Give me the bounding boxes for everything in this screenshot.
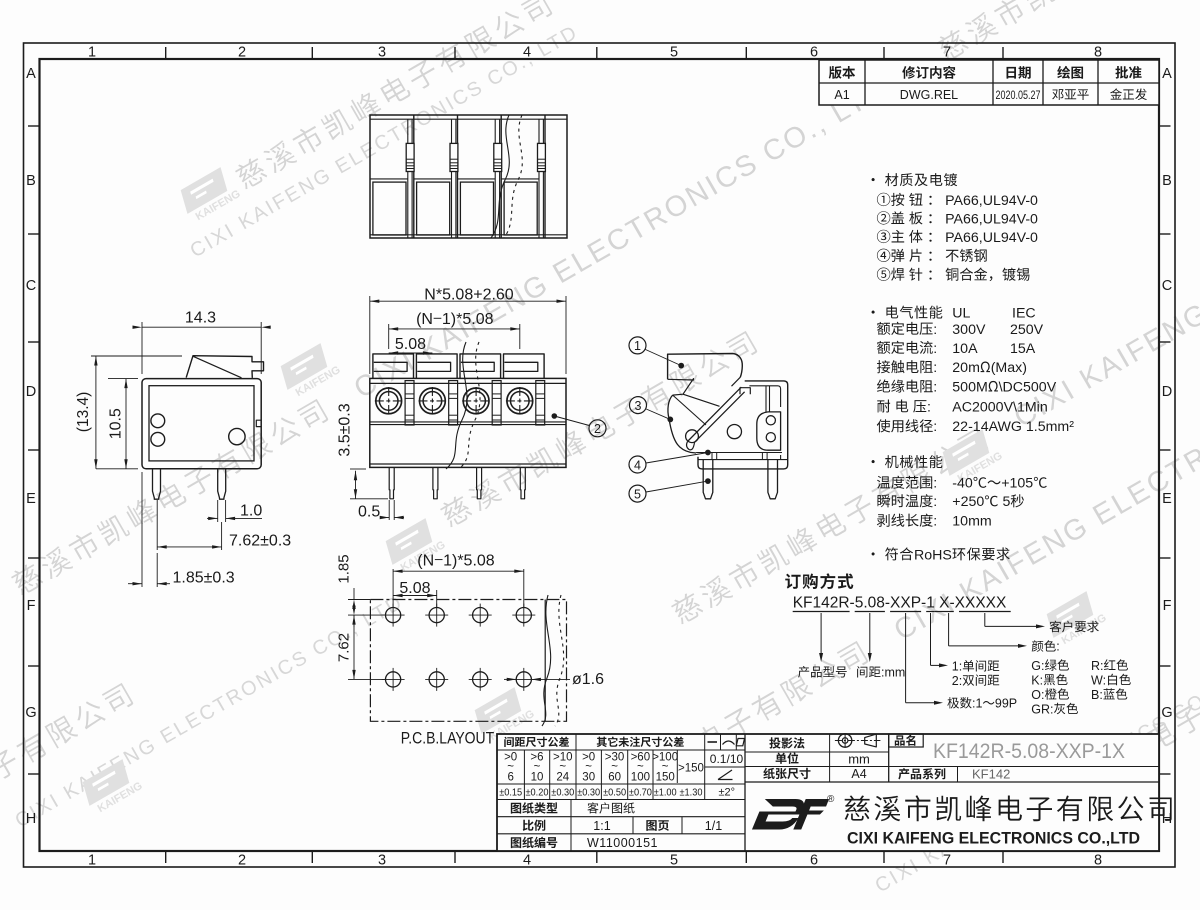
svg-text:2: 2 bbox=[238, 853, 246, 869]
svg-text:RoHS: RoHS bbox=[914, 547, 952, 563]
svg-text:±0.30: ±0.30 bbox=[577, 787, 600, 799]
svg-text:99P: 99P bbox=[995, 697, 1017, 711]
svg-text:4: 4 bbox=[523, 45, 531, 61]
svg-text:A: A bbox=[1162, 66, 1172, 82]
svg-text:6: 6 bbox=[810, 853, 818, 869]
svg-text:1)*5.08: 1)*5.08 bbox=[442, 311, 494, 328]
svg-text::: : bbox=[933, 419, 937, 435]
svg-text:(13.4): (13.4) bbox=[75, 392, 92, 433]
svg-text:H: H bbox=[26, 811, 36, 827]
svg-text:7: 7 bbox=[943, 853, 951, 869]
svg-text:ø1.6: ø1.6 bbox=[572, 671, 604, 688]
svg-text:1:: 1: bbox=[952, 660, 962, 674]
svg-text:1)*5.08: 1)*5.08 bbox=[443, 553, 495, 570]
svg-text:B: B bbox=[1162, 173, 1172, 189]
svg-text:A4: A4 bbox=[851, 767, 866, 781]
svg-text::: : bbox=[933, 380, 937, 396]
svg-text:10.5: 10.5 bbox=[108, 408, 125, 439]
svg-text:10: 10 bbox=[531, 772, 544, 784]
svg-text:20m: 20m bbox=[952, 360, 980, 376]
svg-text:W:: W: bbox=[1091, 673, 1106, 687]
svg-text:E: E bbox=[1162, 491, 1172, 507]
svg-text:6: 6 bbox=[810, 45, 818, 61]
svg-text:±1.30: ±1.30 bbox=[680, 787, 703, 799]
svg-text::: : bbox=[933, 341, 937, 357]
svg-text:5: 5 bbox=[634, 487, 641, 501]
svg-text:3: 3 bbox=[378, 853, 386, 869]
svg-text:7.62: 7.62 bbox=[336, 633, 353, 662]
svg-text::: : bbox=[933, 322, 937, 338]
svg-text:2:: 2: bbox=[952, 674, 962, 688]
svg-text::: : bbox=[933, 476, 937, 492]
svg-text:C: C bbox=[1162, 278, 1172, 294]
svg-text:22-14AWG 1.5mm²: 22-14AWG 1.5mm² bbox=[952, 419, 1074, 435]
svg-text:O:: O: bbox=[1031, 688, 1044, 702]
svg-text:10A: 10A bbox=[952, 341, 978, 357]
svg-text:15A: 15A bbox=[1010, 341, 1036, 357]
svg-text:P.C.B.LAYOUT: P.C.B.LAYOUT bbox=[401, 730, 495, 748]
svg-text:CIXI KAIFENG ELECTRONICS CO.,L: CIXI KAIFENG ELECTRONICS CO.,LTD bbox=[847, 829, 1140, 848]
svg-text:B: B bbox=[26, 173, 36, 189]
svg-text:A1: A1 bbox=[834, 88, 849, 102]
svg-text::: : bbox=[1056, 640, 1059, 654]
svg-text:4: 4 bbox=[523, 853, 531, 869]
svg-text:30: 30 bbox=[582, 772, 595, 784]
svg-text::1: :1 bbox=[972, 697, 982, 711]
svg-text:1/1: 1/1 bbox=[705, 819, 722, 833]
svg-text:5.08: 5.08 bbox=[395, 336, 426, 353]
svg-text:3.5±0.3: 3.5±0.3 bbox=[337, 403, 354, 456]
svg-text:(Max): (Max) bbox=[991, 360, 1027, 376]
svg-text:PA66,UL94V-0: PA66,UL94V-0 bbox=[941, 230, 1038, 246]
svg-text:±1.00: ±1.00 bbox=[654, 787, 677, 799]
svg-text:KF142: KF142 bbox=[972, 766, 1010, 781]
svg-text:5: 5 bbox=[670, 45, 678, 61]
svg-text:1: 1 bbox=[634, 339, 641, 353]
svg-text:500M: 500M bbox=[952, 380, 988, 396]
svg-text::: : bbox=[933, 514, 937, 530]
svg-text:1:1: 1:1 bbox=[593, 819, 610, 833]
svg-text:R:: R: bbox=[1091, 659, 1104, 673]
svg-text:5: 5 bbox=[999, 494, 1011, 510]
svg-text:E: E bbox=[26, 491, 36, 507]
svg-text:±2°: ±2° bbox=[719, 787, 736, 799]
svg-text::: : bbox=[933, 494, 937, 510]
svg-text:±0.30: ±0.30 bbox=[551, 787, 574, 799]
svg-text:UL: UL bbox=[952, 306, 970, 322]
svg-text:±0.50: ±0.50 bbox=[603, 787, 626, 799]
svg-text:1.85: 1.85 bbox=[336, 554, 353, 583]
svg-text:4: 4 bbox=[634, 458, 641, 472]
svg-text:7.62±0.3: 7.62±0.3 bbox=[229, 532, 291, 549]
svg-text:8: 8 bbox=[1094, 853, 1102, 869]
svg-text:150: 150 bbox=[656, 772, 675, 784]
svg-text:3: 3 bbox=[378, 45, 386, 61]
svg-text:®: ® bbox=[827, 794, 835, 805]
svg-text:10mm: 10mm bbox=[952, 514, 991, 530]
svg-text:G: G bbox=[1161, 705, 1172, 721]
svg-text:A: A bbox=[26, 66, 36, 82]
svg-text:DWG.REL: DWG.REL bbox=[900, 88, 958, 102]
svg-text:AC2000V\1Min: AC2000V\1Min bbox=[952, 399, 1047, 415]
svg-text:B:: B: bbox=[1091, 688, 1103, 702]
svg-text:F: F bbox=[27, 598, 36, 614]
svg-text:±0.15: ±0.15 bbox=[499, 787, 522, 799]
svg-text:5: 5 bbox=[670, 853, 678, 869]
svg-text:±0.20: ±0.20 bbox=[526, 787, 549, 799]
svg-text:W11000151: W11000151 bbox=[587, 836, 658, 850]
svg-text:7: 7 bbox=[943, 45, 951, 61]
svg-text:24: 24 bbox=[556, 772, 569, 784]
svg-text:G:: G: bbox=[1031, 659, 1044, 673]
svg-text:0.5: 0.5 bbox=[358, 504, 380, 521]
svg-text:C: C bbox=[26, 278, 36, 294]
svg-text:D: D bbox=[26, 384, 36, 400]
svg-text:100: 100 bbox=[631, 772, 650, 784]
svg-text::mm: :mm bbox=[881, 666, 905, 680]
svg-text:+250: +250 bbox=[952, 494, 984, 510]
svg-text:±0.70: ±0.70 bbox=[629, 787, 652, 799]
svg-text:PA66,UL94V-0: PA66,UL94V-0 bbox=[941, 193, 1038, 209]
svg-text:PA66,UL94V-0: PA66,UL94V-0 bbox=[941, 211, 1038, 227]
svg-text:mm: mm bbox=[848, 752, 870, 767]
svg-text:2020.05.27: 2020.05.27 bbox=[996, 90, 1041, 102]
svg-text:(N: (N bbox=[417, 553, 434, 570]
svg-text:KF142R-5.08-XXP-1 X-XXXXX: KF142R-5.08-XXP-1 X-XXXXX bbox=[793, 595, 1007, 612]
svg-text:2: 2 bbox=[238, 45, 246, 61]
svg-text:0.1/10: 0.1/10 bbox=[710, 752, 744, 766]
svg-text:8: 8 bbox=[1094, 45, 1102, 61]
svg-text:250V: 250V bbox=[1010, 322, 1044, 338]
svg-text:\DC500V: \DC500V bbox=[999, 380, 1057, 396]
svg-text:60: 60 bbox=[608, 772, 621, 784]
svg-text:IEC: IEC bbox=[1012, 306, 1036, 322]
svg-text:1: 1 bbox=[88, 853, 96, 869]
svg-text:G: G bbox=[25, 705, 36, 721]
svg-text:3: 3 bbox=[635, 399, 642, 413]
svg-text::: : bbox=[927, 399, 931, 415]
svg-text:-40: -40 bbox=[952, 476, 973, 492]
svg-text:GR:: GR: bbox=[1031, 702, 1053, 716]
svg-text:2: 2 bbox=[594, 422, 601, 436]
svg-text:1: 1 bbox=[88, 45, 96, 61]
svg-text:1.0: 1.0 bbox=[240, 503, 262, 520]
svg-text:1.85±0.3: 1.85±0.3 bbox=[173, 570, 235, 587]
svg-text:K:: K: bbox=[1031, 673, 1043, 687]
svg-text:5.08: 5.08 bbox=[399, 580, 430, 597]
svg-text:KF142R-5.08-XXP-1X: KF142R-5.08-XXP-1X bbox=[933, 740, 1125, 763]
svg-text:D: D bbox=[1162, 384, 1172, 400]
svg-text:N*5.08+2.60: N*5.08+2.60 bbox=[424, 286, 514, 303]
svg-text:6: 6 bbox=[508, 772, 514, 784]
svg-text:F: F bbox=[1163, 598, 1172, 614]
svg-text::: : bbox=[933, 360, 937, 376]
svg-text:+105: +105 bbox=[1001, 476, 1033, 492]
svg-text:>150: >150 bbox=[678, 763, 704, 775]
svg-text:(N: (N bbox=[416, 311, 433, 328]
svg-text:300V: 300V bbox=[952, 322, 986, 338]
svg-text:14.3: 14.3 bbox=[185, 310, 216, 327]
